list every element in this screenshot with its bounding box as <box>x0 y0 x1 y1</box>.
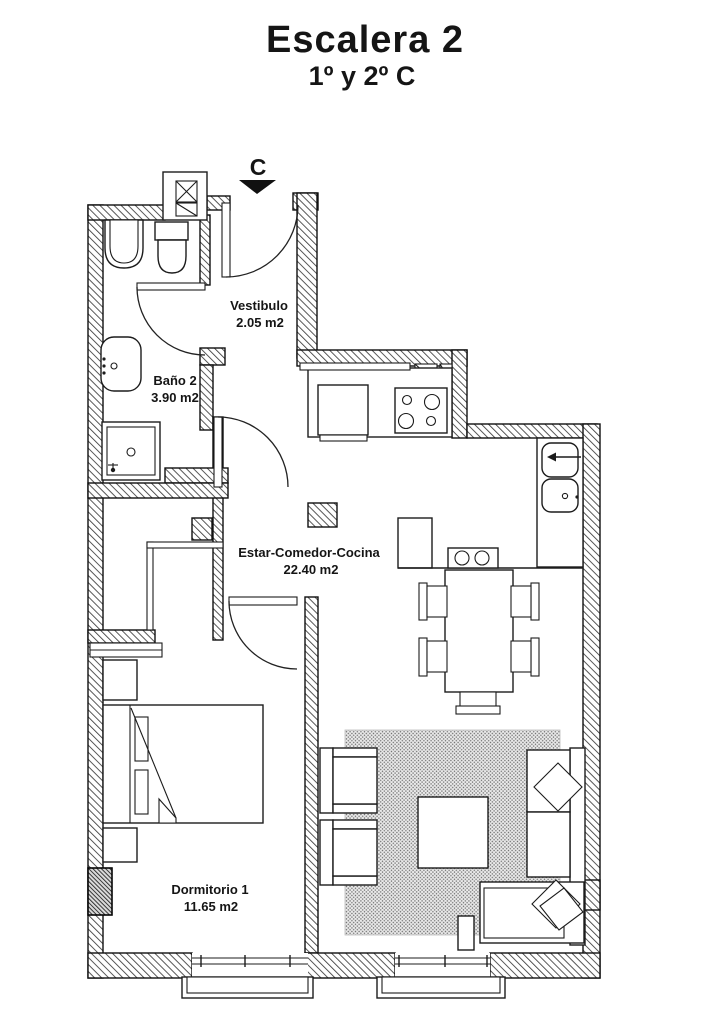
column-living <box>308 503 337 527</box>
armchair-2 <box>320 820 377 885</box>
compass-arrow-icon <box>239 180 276 194</box>
wall-bath-bottom-b <box>88 483 228 498</box>
wall-bedroom-right <box>305 597 318 953</box>
entrance-door-leaf <box>222 203 230 277</box>
bathroom-door-leaf <box>137 283 205 290</box>
window-living <box>395 953 490 978</box>
counter-shelf <box>300 363 410 370</box>
bed <box>103 705 263 823</box>
hall-door-leaf <box>214 417 222 487</box>
wall-bath-top <box>88 205 165 220</box>
label-vestibulo-area: 2.05 m2 <box>236 315 284 330</box>
side-table <box>458 916 474 950</box>
window-sill-bedroom <box>182 977 313 998</box>
label-estar-area: 22.40 m2 <box>284 562 339 577</box>
bathroom-door <box>137 283 205 355</box>
armchair-1 <box>320 748 377 813</box>
wall-bath-door-jamb <box>200 348 225 365</box>
washbasin <box>101 337 141 391</box>
wall-kitchen-topright <box>467 424 597 438</box>
label-dormitorio-name: Dormitorio 1 <box>171 882 248 897</box>
refrigerator <box>318 385 368 441</box>
shaft-bathroom <box>163 172 207 220</box>
label-bano-area: 3.90 m2 <box>151 390 199 405</box>
nightstand-1 <box>103 660 137 700</box>
wall-bath-right <box>200 215 210 285</box>
pillow-2 <box>135 770 148 814</box>
bedroom-door-leaf <box>229 597 297 605</box>
wall-bottom-right <box>490 953 600 978</box>
bathtub <box>105 220 143 268</box>
label-dormitorio-area: 11.65 m2 <box>184 899 238 914</box>
wall-kitchen-post <box>452 350 467 438</box>
wall-bedroom-top <box>88 630 155 643</box>
floorplan-drawing: Escalera 2 1º y 2º C C <box>0 0 724 1024</box>
compass-label: C <box>250 154 267 180</box>
wall-bottom-left <box>88 953 192 978</box>
window-bedroom <box>192 953 308 978</box>
window-sill-living <box>377 977 505 998</box>
wall-left <box>88 205 103 978</box>
floorplan-page: Escalera 2 1º y 2º C C <box>0 0 724 1024</box>
column-bedroom <box>88 868 112 915</box>
label-bano-name: Baño 2 <box>153 373 196 388</box>
toilet <box>155 222 188 273</box>
wall-bottom-center <box>305 953 395 978</box>
bedroom-door <box>229 597 297 669</box>
wall-hall-upper <box>200 365 213 430</box>
entrance-door <box>222 203 298 277</box>
wall-vestibule-right <box>297 193 317 358</box>
dining-table <box>445 570 513 692</box>
column-hall <box>192 518 212 540</box>
page-subtitle: 1º y 2º C <box>309 61 416 91</box>
cooktop-4-burners <box>395 388 447 433</box>
page-title: Escalera 2 <box>266 19 464 61</box>
label-estar-name: Estar-Comedor-Cocina <box>238 545 380 560</box>
coffee-table <box>418 797 488 868</box>
shower-tray <box>102 422 160 480</box>
label-vestibulo-name: Vestibulo <box>230 298 288 313</box>
nightstand-2 <box>103 828 137 862</box>
